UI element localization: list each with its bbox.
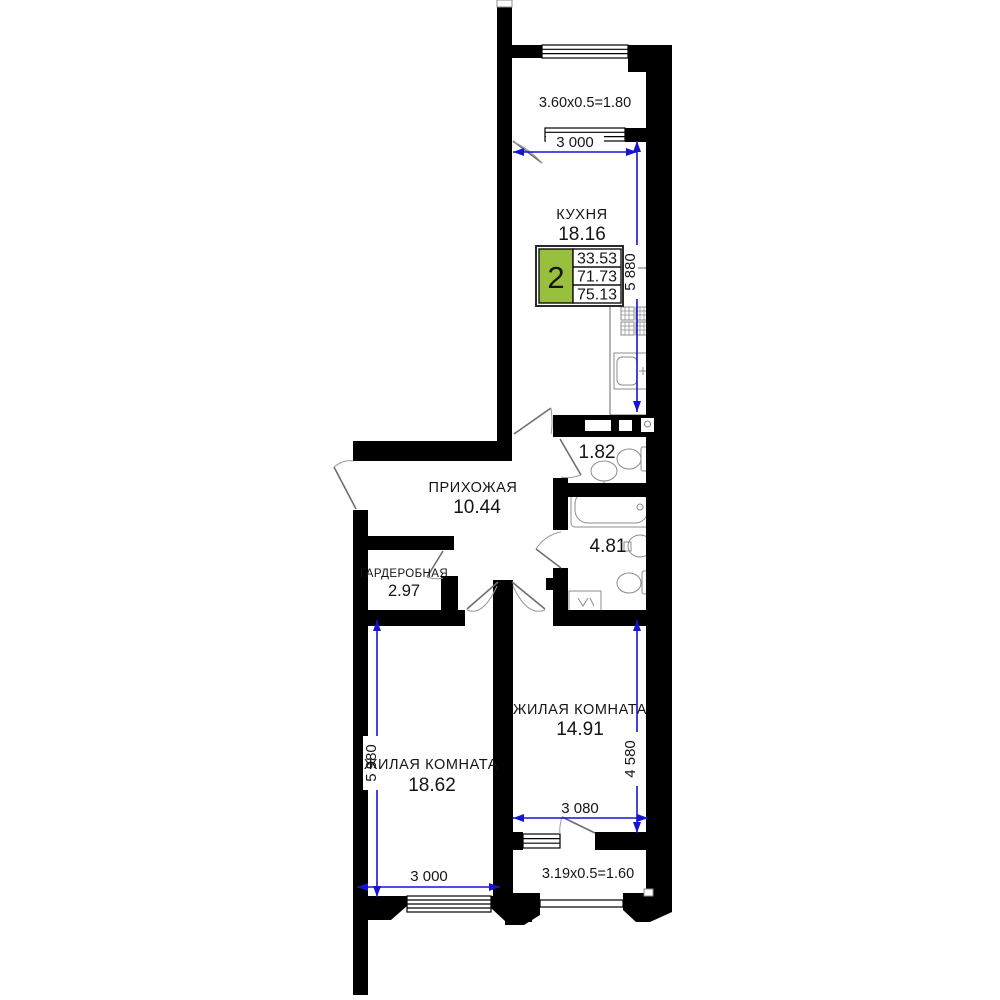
room-label-wardrobe: ГАРДЕРОБНАЯ bbox=[360, 568, 448, 580]
wall-notch-bottom bbox=[644, 889, 653, 896]
summary-apartment-area: 71.73 bbox=[577, 269, 617, 286]
summary-box: 2 33.53 71.73 75.13 bbox=[536, 246, 623, 306]
room-label-living1: ЖИЛАЯ КОМНАТА bbox=[364, 757, 498, 773]
floor-plan-canvas: 3.60x0.5=1.80 3.19x0.5=1.60 3 000 5 880 … bbox=[0, 0, 1000, 1000]
stove bbox=[621, 307, 649, 335]
room-label-kitchen: КУХНЯ bbox=[556, 207, 607, 223]
dim-living2-depth: 4 580 bbox=[622, 740, 639, 778]
room-label-living2: ЖИЛАЯ КОМНАТА bbox=[513, 702, 647, 718]
room-label-hallway: ПРИХОЖАЯ bbox=[429, 480, 518, 496]
balcony-door-sill bbox=[523, 834, 560, 848]
room-area-hallway: 10.44 bbox=[453, 497, 501, 518]
kitchen-door bbox=[514, 408, 552, 434]
room-area-wc: 1.82 bbox=[579, 442, 616, 463]
room-area-living1: 18.62 bbox=[408, 775, 456, 796]
window-living1 bbox=[407, 896, 491, 912]
walls bbox=[353, 7, 672, 995]
kitchen-sink bbox=[614, 353, 648, 389]
summary-total-area: 75.13 bbox=[577, 287, 617, 304]
floor-plan-drawing: 3.60x0.5=1.80 3.19x0.5=1.60 3 000 5 880 … bbox=[0, 0, 1000, 1000]
dim-living1-width: 3 000 bbox=[410, 868, 448, 885]
summary-rooms-count: 2 bbox=[547, 260, 564, 295]
dim-kitchen-width: 3 000 bbox=[556, 134, 594, 151]
room-area-wardrobe: 2.97 bbox=[388, 582, 420, 600]
room-area-kitchen: 18.16 bbox=[558, 224, 606, 245]
window-balcony-bottom bbox=[540, 900, 623, 907]
dim-living2-width: 3 080 bbox=[561, 800, 599, 817]
living2-door bbox=[512, 582, 545, 611]
entrance-door bbox=[334, 461, 356, 509]
summary-living-area: 33.53 bbox=[577, 251, 617, 268]
fixtures bbox=[569, 268, 652, 614]
living2-balcony-door bbox=[560, 817, 595, 834]
room-area-bathroom: 4.81 bbox=[590, 536, 627, 557]
ventilation-shafts bbox=[585, 418, 654, 432]
bathroom-door bbox=[536, 532, 561, 568]
room-area-living2: 14.91 bbox=[556, 719, 604, 740]
wall-notch-top bbox=[497, 0, 512, 7]
window-balcony-top bbox=[542, 45, 628, 58]
balcony-top-label: 3.60x0.5=1.80 bbox=[539, 95, 631, 111]
dim-kitchen-depth: 5 880 bbox=[622, 253, 639, 291]
balcony-bottom-label: 3.19x0.5=1.60 bbox=[542, 866, 634, 882]
